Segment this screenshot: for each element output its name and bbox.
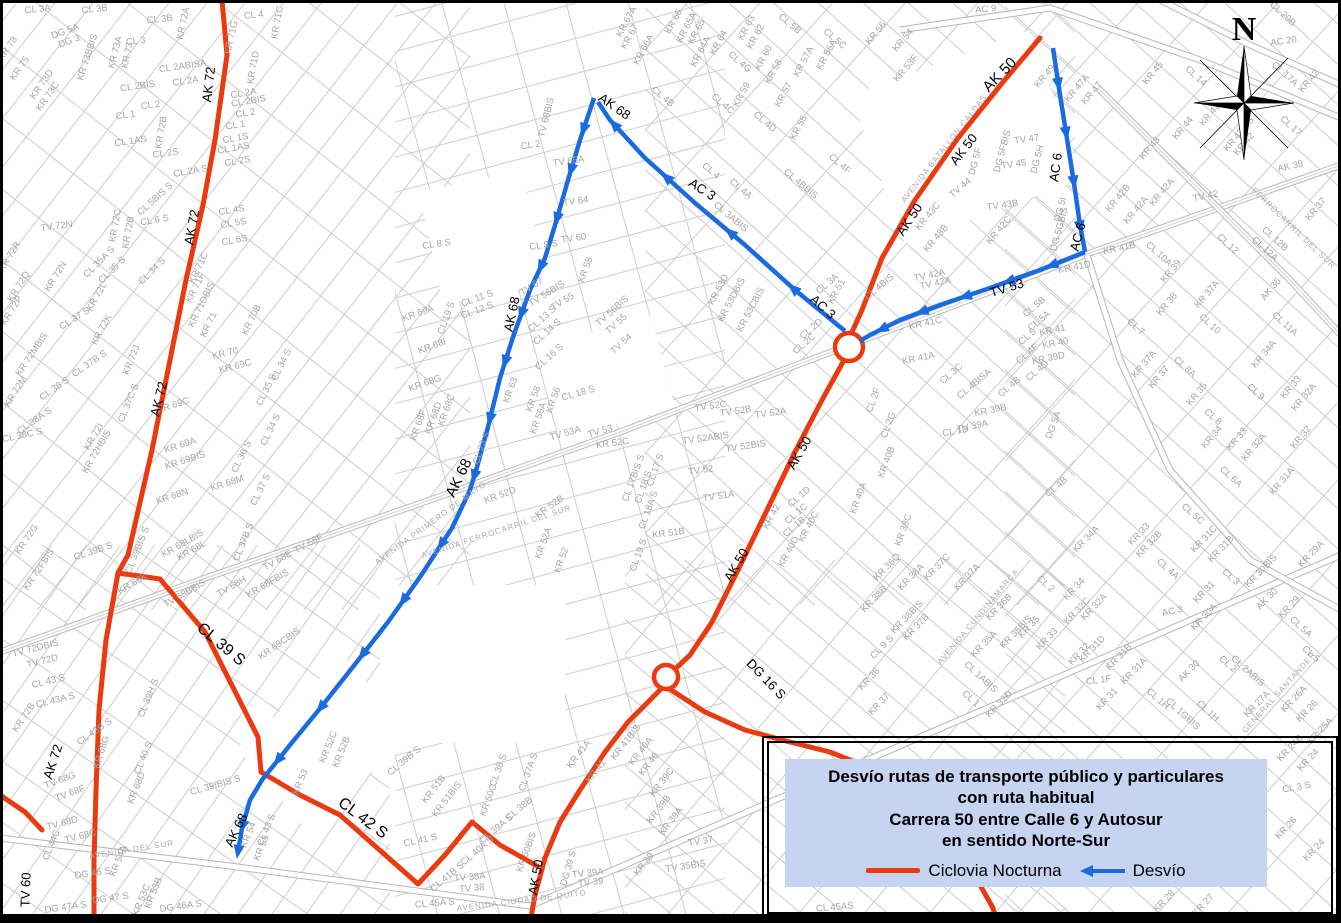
svg-text:CL 39H S: CL 39H S: [136, 677, 161, 719]
svg-text:DG 47A S: DG 47A S: [44, 899, 87, 916]
svg-text:KR 56: KR 56: [863, 20, 888, 47]
svg-text:KR 31: KR 31: [1094, 686, 1120, 713]
svg-text:CL 5S: CL 5S: [220, 216, 248, 231]
svg-text:CL 4C: CL 4C: [709, 91, 737, 117]
svg-text:CL 3B: CL 3B: [81, 3, 108, 17]
svg-text:TV 64: TV 64: [562, 194, 589, 208]
svg-text:TV 72N: TV 72N: [40, 219, 74, 234]
svg-text:KR 31: KR 31: [1191, 579, 1217, 606]
svg-text:KR 72J: KR 72J: [121, 343, 143, 376]
svg-text:AC 20: AC 20: [1270, 34, 1298, 49]
svg-text:CL 19 S: CL 19 S: [628, 537, 650, 573]
svg-text:KR 33: KR 33: [1034, 626, 1060, 653]
compass-north-letter: N: [1232, 11, 1257, 48]
svg-text:CL 11A: CL 11A: [1270, 310, 1301, 339]
svg-text:CL 8A: CL 8A: [1171, 354, 1198, 380]
legend-title-line2: con ruta habitual: [958, 787, 1095, 808]
svg-text:KR 71C: KR 71C: [269, 5, 286, 40]
svg-text:KR 37: KR 37: [866, 691, 892, 718]
svg-text:CL 2ABISA: CL 2ABISA: [158, 58, 207, 76]
svg-text:CL 23 S: CL 23 S: [471, 430, 493, 466]
svg-text:CL 1D: CL 1D: [942, 424, 970, 439]
svg-text:CL 3B: CL 3B: [146, 13, 173, 27]
legend-title-line1: Desvío rutas de transporte público y par…: [828, 766, 1224, 787]
svg-text:CL 4D: CL 4D: [751, 109, 779, 135]
svg-text:KR 36Q: KR 36Q: [872, 551, 903, 583]
svg-text:KR 52A: KR 52A: [533, 525, 555, 560]
svg-text:TV 38: TV 38: [459, 882, 485, 895]
svg-text:CL 6A: CL 6A: [1217, 464, 1244, 490]
svg-text:KR 52D: KR 52D: [483, 485, 518, 507]
legend-title-line4: en sentido Norte-Sur: [942, 830, 1110, 851]
svg-text:CL 2A S: CL 2A S: [173, 163, 209, 180]
svg-text:KR 41A: KR 41A: [565, 738, 594, 771]
svg-text:CL 3ABIS: CL 3ABIS: [711, 200, 750, 235]
svg-text:KR 68G: KR 68G: [407, 373, 443, 395]
svg-text:KR 35A: KR 35A: [969, 628, 1000, 660]
svg-text:AK 72: AK 72: [199, 66, 218, 103]
svg-text:TV 53: TV 53: [988, 275, 1026, 299]
svg-text:CL 1: CL 1: [115, 109, 136, 123]
svg-text:KR 37A: KR 37A: [952, 561, 983, 593]
svg-text:TV 51A: TV 51A: [702, 489, 736, 504]
svg-text:CL 37C S: CL 37C S: [116, 382, 141, 424]
svg-text:KR 69A: KR 69A: [401, 303, 436, 325]
svg-text:KR 42: KR 42: [1296, 68, 1321, 95]
svg-text:KR 72R: KR 72R: [0, 240, 23, 274]
svg-text:KR 37: KR 37: [1303, 196, 1328, 223]
svg-text:KR 63: KR 63: [501, 376, 520, 405]
svg-text:KR 72P: KR 72P: [0, 294, 25, 328]
svg-text:TV 60: TV 60: [17, 872, 33, 907]
svg-text:CL 7: CL 7: [1125, 316, 1147, 337]
map-canvas: CL 3ACL 3BDG 5ADG 3KR 78KR 75CL 3BKR 72A…: [0, 0, 1341, 923]
svg-text:KR 52: KR 52: [552, 546, 571, 575]
svg-text:KR 68N: KR 68N: [155, 486, 190, 507]
svg-text:KR 38B: KR 38B: [859, 584, 890, 615]
svg-text:CL 1GBIS: CL 1GBIS: [1163, 696, 1202, 733]
svg-text:TV 52: TV 52: [687, 463, 714, 477]
svg-text:AK 72: AK 72: [181, 208, 202, 245]
svg-text:CL 2S: CL 2S: [152, 146, 179, 161]
legend-blue-label: Desvío: [1133, 861, 1186, 881]
svg-text:CL 12: CL 12: [1215, 232, 1241, 257]
svg-text:CL 4A: CL 4A: [727, 176, 755, 202]
svg-text:CL 1AS: CL 1AS: [114, 134, 148, 149]
svg-text:CL 14: CL 14: [1183, 64, 1209, 89]
svg-text:KR 42A: KR 42A: [1121, 194, 1151, 227]
svg-text:CL 38 S: CL 38 S: [37, 375, 71, 404]
svg-text:TV 68BIS: TV 68BIS: [536, 96, 557, 138]
svg-text:AK 39: AK 39: [1277, 158, 1305, 174]
svg-text:KR 34A: KR 34A: [1249, 338, 1279, 371]
compass-rose: N: [1194, 11, 1294, 160]
svg-text:TV 68D: TV 68D: [45, 814, 79, 833]
svg-text:TV 52BIS: TV 52BIS: [725, 438, 767, 455]
svg-text:TV 39: TV 39: [578, 876, 604, 890]
svg-text:TV 35BIS: TV 35BIS: [665, 858, 707, 875]
svg-text:CL 6S: CL 6S: [221, 233, 249, 248]
legend-items: Ciclovia Nocturna Desvío: [866, 861, 1185, 881]
svg-text:CL 2A: CL 2A: [172, 74, 200, 89]
svg-text:CL 2F: CL 2F: [864, 386, 883, 414]
svg-text:CL 20B: CL 20B: [1267, 0, 1298, 29]
svg-text:KR 41B: KR 41B: [1102, 240, 1136, 258]
svg-text:CL 4F: CL 4F: [826, 152, 853, 177]
svg-text:TV 65A: TV 65A: [552, 154, 586, 169]
svg-text:CL 5BIS S: CL 5BIS S: [135, 180, 175, 218]
svg-text:KR 42A: KR 42A: [1147, 176, 1177, 209]
svg-text:KR 40A: KR 40A: [848, 480, 870, 515]
svg-text:AK 50: AK 50: [525, 858, 546, 895]
svg-text:CL 40 S: CL 40 S: [132, 740, 155, 776]
svg-text:KR 72K: KR 72K: [89, 312, 114, 347]
svg-text:CL 37 S: CL 37 S: [248, 472, 273, 507]
svg-text:KR 41: KR 41: [584, 758, 609, 786]
svg-text:KR 39B: KR 39B: [973, 402, 1007, 420]
svg-text:TV 68H: TV 68H: [215, 574, 249, 600]
svg-text:KR 70: KR 70: [211, 345, 239, 362]
svg-text:AK 30: AK 30: [1176, 658, 1202, 684]
svg-text:KR 41A: KR 41A: [901, 350, 936, 368]
svg-text:KR 31A: KR 31A: [1267, 465, 1297, 498]
svg-text:CL 4: CL 4: [243, 9, 264, 22]
svg-text:CL 19 S: CL 19 S: [436, 300, 458, 336]
svg-text:CL 37 S: CL 37 S: [57, 305, 92, 332]
svg-text:KR 72G: KR 72G: [13, 523, 41, 557]
svg-text:CL 45A S: CL 45A S: [414, 896, 455, 910]
svg-text:CL 2: CL 2: [140, 99, 161, 113]
svg-text:CL 3A: CL 3A: [24, 3, 52, 17]
svg-text:CL 5B: CL 5B: [776, 11, 803, 36]
svg-text:KR 39C: KR 39C: [647, 766, 676, 799]
svg-text:CL 34 S: CL 34 S: [136, 255, 168, 287]
svg-text:AC 3: AC 3: [1161, 604, 1184, 619]
svg-text:AK 36: AK 36: [1259, 276, 1284, 303]
svg-text:CL 4A: CL 4A: [1154, 556, 1181, 582]
svg-text:CL 4B: CL 4B: [1043, 474, 1070, 499]
svg-text:KR 72M: KR 72M: [2, 374, 30, 409]
svg-text:KR 68G: KR 68G: [91, 734, 112, 770]
svg-text:KR 72MBIS: KR 72MBIS: [13, 331, 50, 378]
svg-text:KR 72A: KR 72A: [175, 6, 193, 41]
svg-text:TV 52A: TV 52A: [754, 406, 788, 421]
svg-text:CL 2: CL 2: [520, 139, 541, 153]
svg-text:KR 42C: KR 42C: [984, 214, 1014, 247]
svg-text:KR 72B: KR 72B: [120, 215, 137, 249]
legend-box: Desvío rutas de transporte público y par…: [762, 736, 1338, 919]
legend-title-line3: Carrera 50 entre Calle 6 y Autosur: [889, 809, 1162, 830]
svg-text:KR 55: KR 55: [788, 114, 810, 142]
svg-text:KR 68CBIS: KR 68CBIS: [257, 626, 303, 663]
svg-text:KR 57A: KR 57A: [791, 44, 816, 79]
svg-text:CL 34 S: CL 34 S: [258, 412, 283, 447]
svg-text:KR 71D: KR 71D: [245, 50, 262, 85]
svg-text:KR 37C: KR 37C: [922, 551, 953, 583]
svg-text:CL 3: CL 3: [1220, 566, 1242, 587]
svg-text:DG 5A: DG 5A: [1044, 409, 1064, 440]
svg-text:CL 43A S: CL 43A S: [35, 690, 76, 710]
svg-text:DG 46A S: DG 46A S: [159, 898, 202, 915]
svg-text:KR 32: KR 32: [1288, 424, 1313, 451]
svg-text:CL 8: CL 8: [1202, 406, 1224, 427]
svg-text:CL 9: CL 9: [1245, 381, 1267, 402]
svg-text:CL 1: CL 1: [225, 118, 246, 132]
svg-text:CL 38 S: CL 38 S: [488, 752, 510, 788]
desvio-arrow-icon: [1080, 865, 1125, 877]
svg-text:TV 37: TV 37: [687, 834, 714, 848]
svg-text:CL 37B S: CL 37B S: [70, 348, 109, 380]
svg-text:DG 47 S: DG 47 S: [92, 891, 130, 907]
svg-text:KR 39: KR 39: [632, 851, 657, 879]
svg-text:KR 57: KR 57: [773, 81, 795, 109]
svg-text:KR 68I: KR 68I: [417, 337, 448, 357]
svg-text:KR 51B: KR 51B: [652, 526, 686, 541]
svg-text:CL 1: CL 1: [960, 688, 982, 709]
svg-text:TV 52ABIS: TV 52ABIS: [682, 430, 730, 447]
svg-text:AC 9: AC 9: [975, 3, 997, 16]
svg-text:TV 60: TV 60: [560, 231, 587, 245]
svg-text:KR 72FBIS: KR 72FBIS: [21, 547, 57, 593]
svg-text:KR 72B: KR 72B: [153, 115, 170, 149]
svg-text:KR 40D: KR 40D: [776, 534, 801, 569]
legend-box-inner-border: Desvío rutas de transporte público y par…: [767, 741, 1333, 914]
svg-text:CL 1F: CL 1F: [1085, 673, 1112, 687]
svg-text:KR 37A: KR 37A: [1192, 278, 1222, 311]
legend-red-label: Ciclovia Nocturna: [928, 861, 1061, 881]
svg-text:CL 39B S: CL 39B S: [72, 540, 114, 563]
svg-text:KR 68M: KR 68M: [209, 473, 245, 494]
svg-text:CL 2S: CL 2S: [224, 154, 252, 169]
ciclovia-line-swatch: [866, 868, 920, 873]
svg-text:CL 10: CL 10: [1197, 312, 1223, 337]
svg-text:CL 37B S: CL 37B S: [231, 521, 256, 562]
svg-text:CL 41 S: CL 41 S: [403, 832, 439, 850]
svg-text:KR 72N: KR 72N: [42, 260, 69, 294]
legend-panel: Desvío rutas de transporte público y par…: [785, 759, 1267, 887]
svg-text:AK 50: AK 50: [784, 434, 815, 472]
svg-text:CL 43 S: CL 43 S: [31, 672, 67, 691]
